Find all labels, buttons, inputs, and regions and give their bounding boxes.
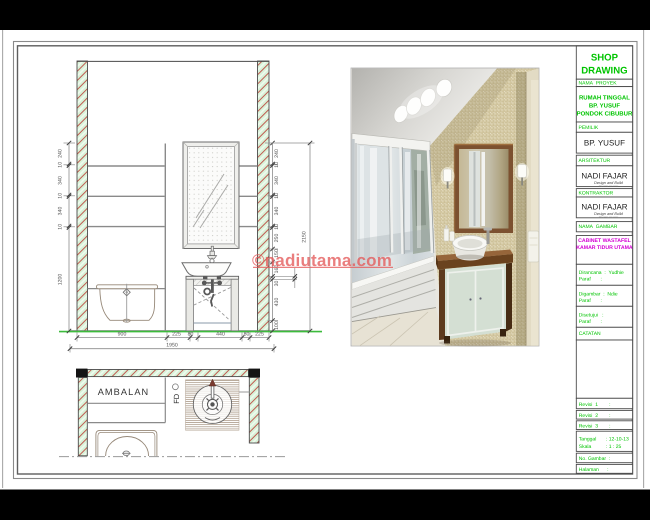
svg-text:240: 240 — [58, 149, 64, 158]
svg-text:DRAWING: DRAWING — [581, 66, 627, 77]
svg-text:2150: 2150 — [302, 231, 308, 243]
svg-text:100: 100 — [274, 321, 280, 330]
svg-text:AMBALAN: AMBALAN — [98, 387, 150, 397]
svg-text:NADI FAJAR: NADI FAJAR — [581, 203, 627, 212]
svg-text:10: 10 — [274, 224, 280, 230]
svg-text:Paraf :: Paraf : — [579, 277, 602, 283]
svg-text:PEMILIK: PEMILIK — [579, 125, 599, 131]
svg-text:Design and Build: Design and Build — [594, 212, 624, 216]
svg-text:NADI FAJAR: NADI FAJAR — [581, 172, 627, 181]
svg-text:BP. YUSUF: BP. YUSUF — [589, 103, 620, 110]
svg-text:30: 30 — [274, 281, 280, 287]
svg-text:: 1 : 25: : 1 : 25 — [606, 444, 622, 450]
svg-text:Paraf :: Paraf : — [579, 298, 602, 304]
svg-text:Revisi 2 :: Revisi 2 : — [579, 413, 611, 419]
svg-text:10: 10 — [274, 193, 280, 199]
svg-text:10: 10 — [58, 224, 64, 230]
svg-text:: 12-10-13: : 12-10-13 — [606, 437, 629, 443]
svg-text:Telp. (021) 777-77777: Telp. (021) 777-77777 — [599, 215, 619, 218]
svg-text:430: 430 — [274, 298, 280, 307]
svg-text:Telp. (021) 777-77777: Telp. (021) 777-77777 — [599, 184, 619, 187]
svg-text:80: 80 — [188, 332, 194, 338]
svg-text:Tanggal: Tanggal — [579, 437, 597, 443]
svg-text:Design and Build: Design and Build — [594, 181, 624, 185]
svg-text:340: 340 — [58, 207, 64, 216]
svg-text:Digambar : Ndie: Digambar : Ndie — [579, 292, 618, 298]
svg-text:340: 340 — [274, 176, 280, 185]
svg-text:Skala: Skala — [579, 444, 592, 450]
svg-text:1200: 1200 — [58, 274, 64, 286]
svg-text:CABINET WASTAFEL: CABINET WASTAFEL — [578, 238, 631, 244]
svg-text:CATATAN: CATATAN — [579, 331, 601, 337]
svg-text:KONTRAKTOR: KONTRAKTOR — [579, 190, 614, 196]
svg-text:RUMAH TINGGAL: RUMAH TINGGAL — [579, 95, 630, 102]
svg-text:900: 900 — [118, 332, 127, 338]
svg-text:340: 340 — [58, 176, 64, 185]
svg-text:225: 225 — [255, 332, 264, 338]
svg-text:Dirancana : Yudhie: Dirancana : Yudhie — [579, 270, 624, 276]
svg-text:Revisi 3 :: Revisi 3 : — [579, 424, 611, 430]
svg-text:SHOP: SHOP — [591, 53, 619, 64]
svg-text:240: 240 — [274, 149, 280, 158]
svg-text:ARSITEKTUR: ARSITEKTUR — [579, 158, 611, 164]
svg-text:250: 250 — [274, 234, 280, 243]
svg-text:225: 225 — [172, 332, 181, 338]
svg-text:NAMA GAMBAR: NAMA GAMBAR — [579, 224, 618, 230]
svg-text:340: 340 — [274, 207, 280, 216]
svg-text:10: 10 — [274, 162, 280, 168]
svg-text:80: 80 — [244, 332, 250, 338]
svg-text:Halaman :: Halaman : — [579, 467, 609, 473]
svg-text:KAMAR TIDUR UTAMA: KAMAR TIDUR UTAMA — [576, 245, 633, 251]
svg-text:10: 10 — [58, 162, 64, 168]
svg-text:10: 10 — [58, 193, 64, 199]
svg-text:1950: 1950 — [166, 343, 178, 349]
svg-text:Disetujui :: Disetujui : — [579, 313, 604, 319]
svg-text:NAMA PROYEK: NAMA PROYEK — [579, 81, 618, 87]
svg-text:Revisi 1 :: Revisi 1 : — [579, 402, 611, 408]
svg-text:440: 440 — [216, 332, 225, 338]
svg-text:FD: FD — [172, 393, 181, 404]
svg-text:PONDOK CIBUBUR: PONDOK CIBUBUR — [577, 111, 633, 118]
svg-text:Paraf :: Paraf : — [579, 319, 602, 325]
svg-text:No. Gambar :: No. Gambar : — [579, 456, 610, 462]
svg-text:BP. YUSUF: BP. YUSUF — [584, 139, 625, 148]
